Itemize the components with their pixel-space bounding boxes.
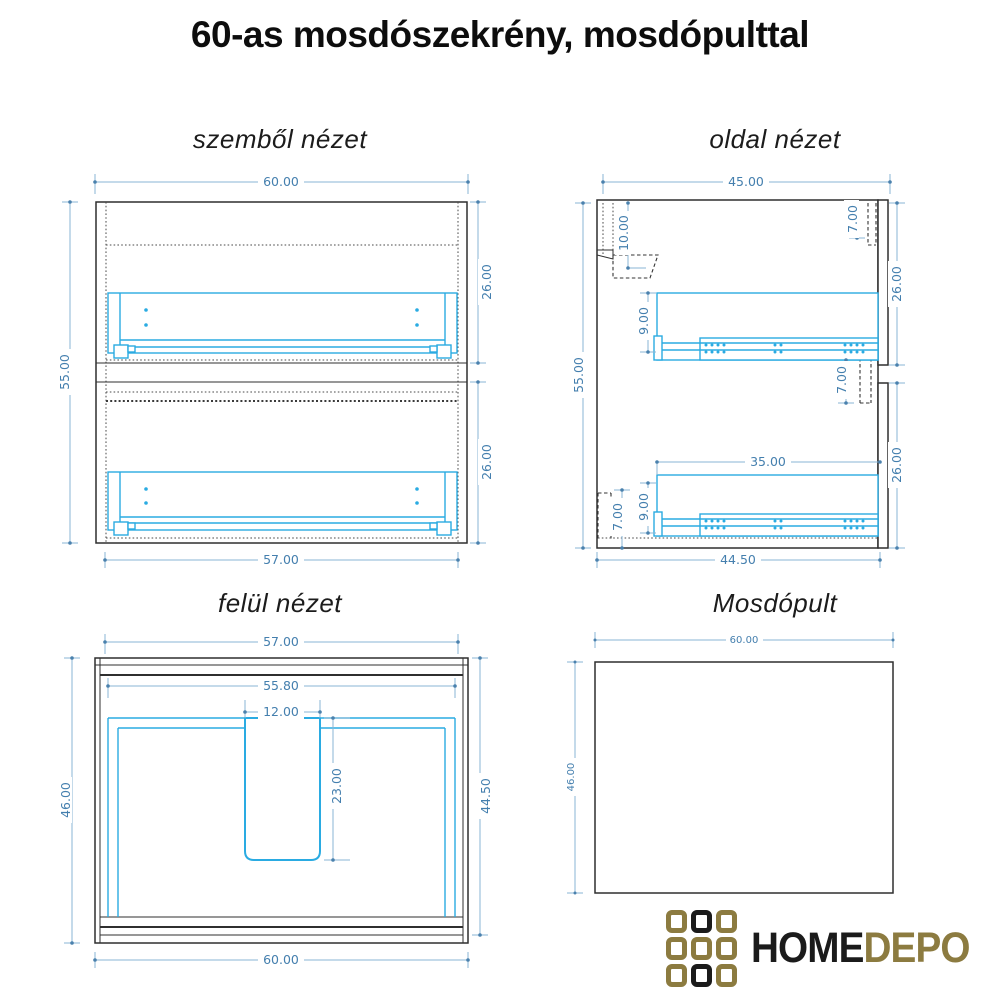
side-bottom-drawer [654, 475, 878, 536]
dim-label: 44.50 [720, 552, 756, 567]
side-top-drawer [654, 293, 878, 360]
front-view-title: szemből nézet [40, 124, 520, 155]
logo-square [691, 910, 712, 933]
logo-text-depo: DEPO [864, 924, 970, 972]
dim-label: 44.50 [478, 778, 493, 814]
logo-square [691, 937, 712, 960]
logo-square [716, 964, 737, 987]
logo-grid-icon [666, 910, 737, 987]
dim-label: 26.00 [889, 447, 904, 483]
dim-label: 60.00 [730, 635, 759, 646]
dim-label: 46.00 [566, 763, 577, 792]
dim-label: 7.00 [845, 205, 860, 233]
front-view-drawing: 60.00 55.00 26.00 [40, 160, 520, 580]
technical-drawing-sheet: 60-as mosdószekrény, mosdópulttal szembő… [0, 0, 1000, 1000]
front-dim-top-drawer: 26.00 [470, 200, 494, 365]
dim-label: 45.00 [728, 174, 764, 189]
logo-text-home: HOME [751, 924, 864, 972]
dim-label: 46.00 [58, 782, 73, 818]
homedepo-logo: HOMEDEPO [666, 910, 994, 987]
logo-square [666, 910, 687, 933]
front-bottom-drawer [106, 472, 458, 538]
dim-label: 7.00 [610, 503, 625, 531]
front-dim-overall-width: 60.00 [93, 174, 470, 194]
side-view-title: oldal nézet [550, 124, 1000, 155]
dim-label: 23.00 [329, 768, 344, 804]
counter-dim-width: 60.00 [594, 632, 895, 648]
dim-label: 55.00 [571, 357, 586, 393]
side-dim-overall-height: 55.00 [570, 201, 591, 550]
top-view-drawing: 57.00 55.80 12.00 [40, 590, 520, 1000]
dim-label: 57.00 [263, 552, 299, 567]
counter-dim-depth: 46.00 [564, 661, 583, 895]
top-dim-carcass-width: 57.00 [103, 634, 460, 654]
logo-square [666, 964, 687, 987]
logo-text: HOMEDEPO [751, 924, 970, 973]
dim-label: 60.00 [263, 952, 299, 967]
side-dim-carcass-depth: 44.50 [595, 552, 882, 568]
top-dim-carcass-depth: 44.50 [472, 656, 493, 937]
dim-label: 26.00 [479, 444, 494, 480]
dim-label: 35.00 [750, 454, 786, 469]
dim-label: 26.00 [889, 266, 904, 302]
logo-square [716, 910, 737, 933]
top-dim-overall-width: 60.00 [93, 952, 470, 968]
side-dim-overall-depth: 45.00 [601, 174, 892, 194]
counter-view-drawing: 60.00 46.00 [550, 590, 1000, 910]
dim-label: 10.00 [616, 215, 631, 251]
dim-label: 55.80 [263, 678, 299, 693]
dim-label: 57.00 [263, 634, 299, 649]
sink-cutout [245, 718, 320, 860]
dim-label: 9.00 [636, 307, 651, 335]
dim-label: 7.00 [834, 366, 849, 394]
front-dim-bottom-drawer: 26.00 [470, 380, 494, 545]
logo-square [691, 964, 712, 987]
side-dim-top-drawer: 26.00 [888, 201, 905, 367]
counter-slab [595, 662, 893, 893]
front-dim-overall-height: 55.00 [56, 200, 78, 545]
side-view-drawing: 45.00 55.00 10.00 [550, 160, 1000, 580]
side-dim-bottom-drawer: 26.00 [888, 381, 905, 550]
logo-square [666, 937, 687, 960]
top-dim-overall-depth: 46.00 [57, 656, 80, 945]
front-dim-carcass-width: 57.00 [103, 552, 460, 568]
front-top-drawer [106, 293, 458, 360]
dim-label: 55.00 [57, 354, 72, 390]
dim-label: 60.00 [263, 174, 299, 189]
dim-label: 9.00 [636, 493, 651, 521]
page-title: 60-as mosdószekrény, mosdópulttal [0, 14, 1000, 56]
dim-label: 12.00 [263, 704, 299, 719]
dim-label: 26.00 [479, 264, 494, 300]
logo-square [716, 937, 737, 960]
